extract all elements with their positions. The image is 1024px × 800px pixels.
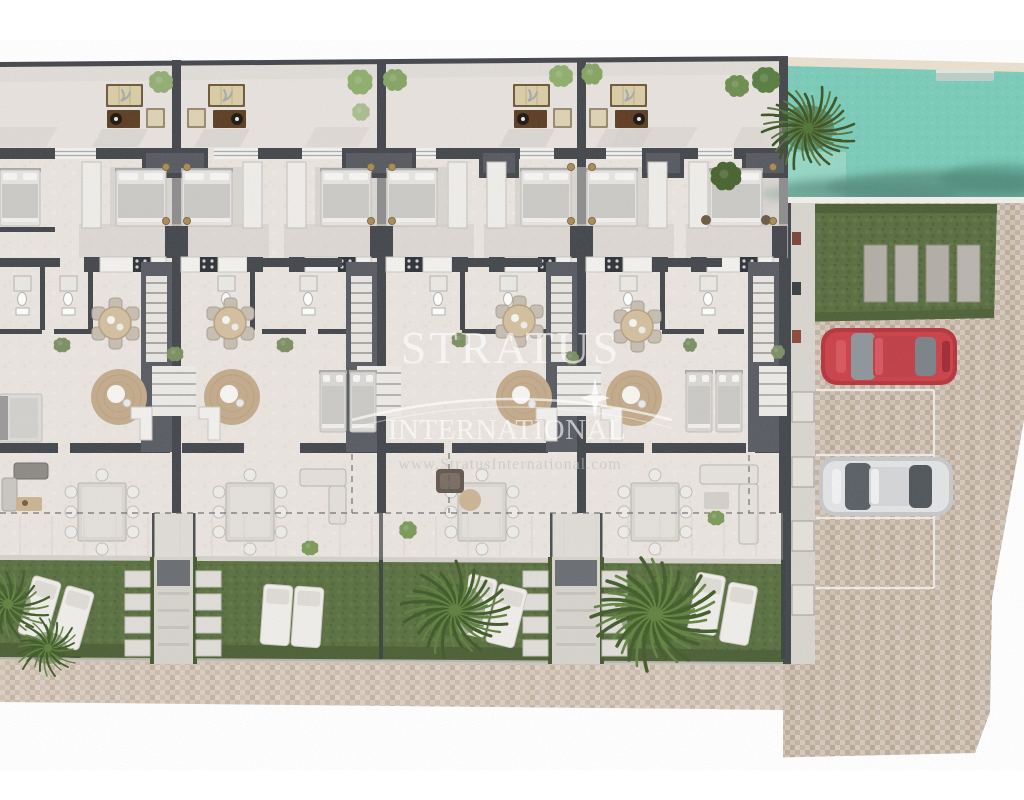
svg-text:www.StratusInternational.com: www.StratusInternational.com	[398, 456, 621, 473]
svg-text:STRATUS: STRATUS	[401, 322, 621, 373]
svg-text:INTERNATIONAL: INTERNATIONAL	[388, 414, 626, 446]
